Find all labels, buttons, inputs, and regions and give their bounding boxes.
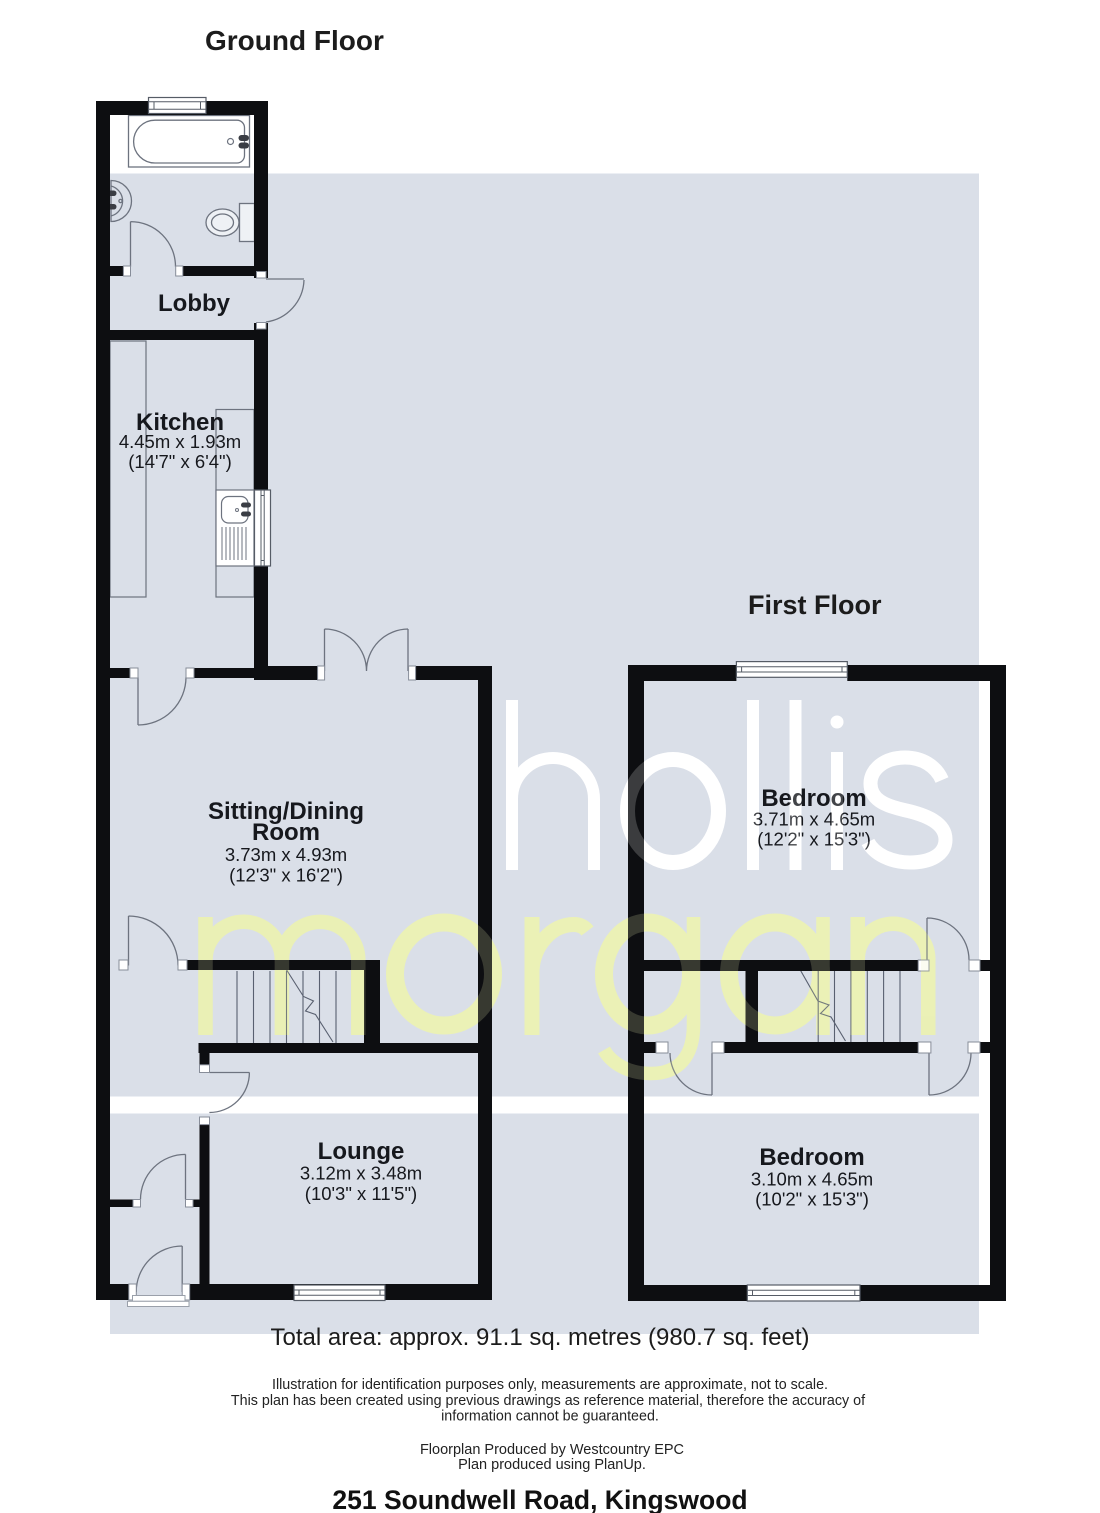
svg-text:Total area: approx. 91.1 sq. m: Total area: approx. 91.1 sq. metres (980… (271, 1324, 810, 1351)
svg-text:Lobby: Lobby (158, 290, 231, 317)
svg-text:251 Soundwell Road, Kingswood: 251 Soundwell Road, Kingswood (332, 1485, 747, 1513)
svg-text:(10'3" x 11'5"): (10'3" x 11'5") (305, 1183, 417, 1204)
svg-text:(12'2" x 15'3"): (12'2" x 15'3") (757, 829, 871, 850)
svg-text:Room: Room (252, 819, 320, 846)
svg-text:Illustration for identificatio: Illustration for identification purposes… (272, 1377, 828, 1393)
svg-text:(14'7" x 6'4"): (14'7" x 6'4") (128, 451, 232, 472)
svg-text:First Floor: First Floor (748, 590, 882, 620)
svg-text:Lounge: Lounge (318, 1138, 405, 1165)
svg-text:This plan has been created usi: This plan has been created using previou… (231, 1393, 865, 1409)
svg-text:Bedroom: Bedroom (759, 1144, 864, 1171)
svg-text:3.10m x 4.65m: 3.10m x 4.65m (751, 1169, 873, 1190)
svg-text:(12'3" x 16'2"): (12'3" x 16'2") (229, 865, 343, 886)
svg-text:3.12m x 3.48m: 3.12m x 3.48m (300, 1163, 422, 1184)
svg-text:3.73m x 4.93m: 3.73m x 4.93m (225, 844, 347, 865)
svg-text:3.71m x 4.65m: 3.71m x 4.65m (753, 809, 875, 830)
svg-text:4.45m x 1.93m: 4.45m x 1.93m (119, 431, 241, 452)
svg-text:Plan produced using PlanUp.: Plan produced using PlanUp. (458, 1457, 646, 1473)
svg-text:(10'2" x 15'3"): (10'2" x 15'3") (755, 1189, 869, 1210)
svg-text:Ground Floor: Ground Floor (205, 25, 384, 56)
svg-text:Floorplan Produced by Westcoun: Floorplan Produced by Westcountry EPC (420, 1442, 684, 1458)
svg-text:information cannot be guarante: information cannot be guaranteed. (441, 1409, 659, 1425)
